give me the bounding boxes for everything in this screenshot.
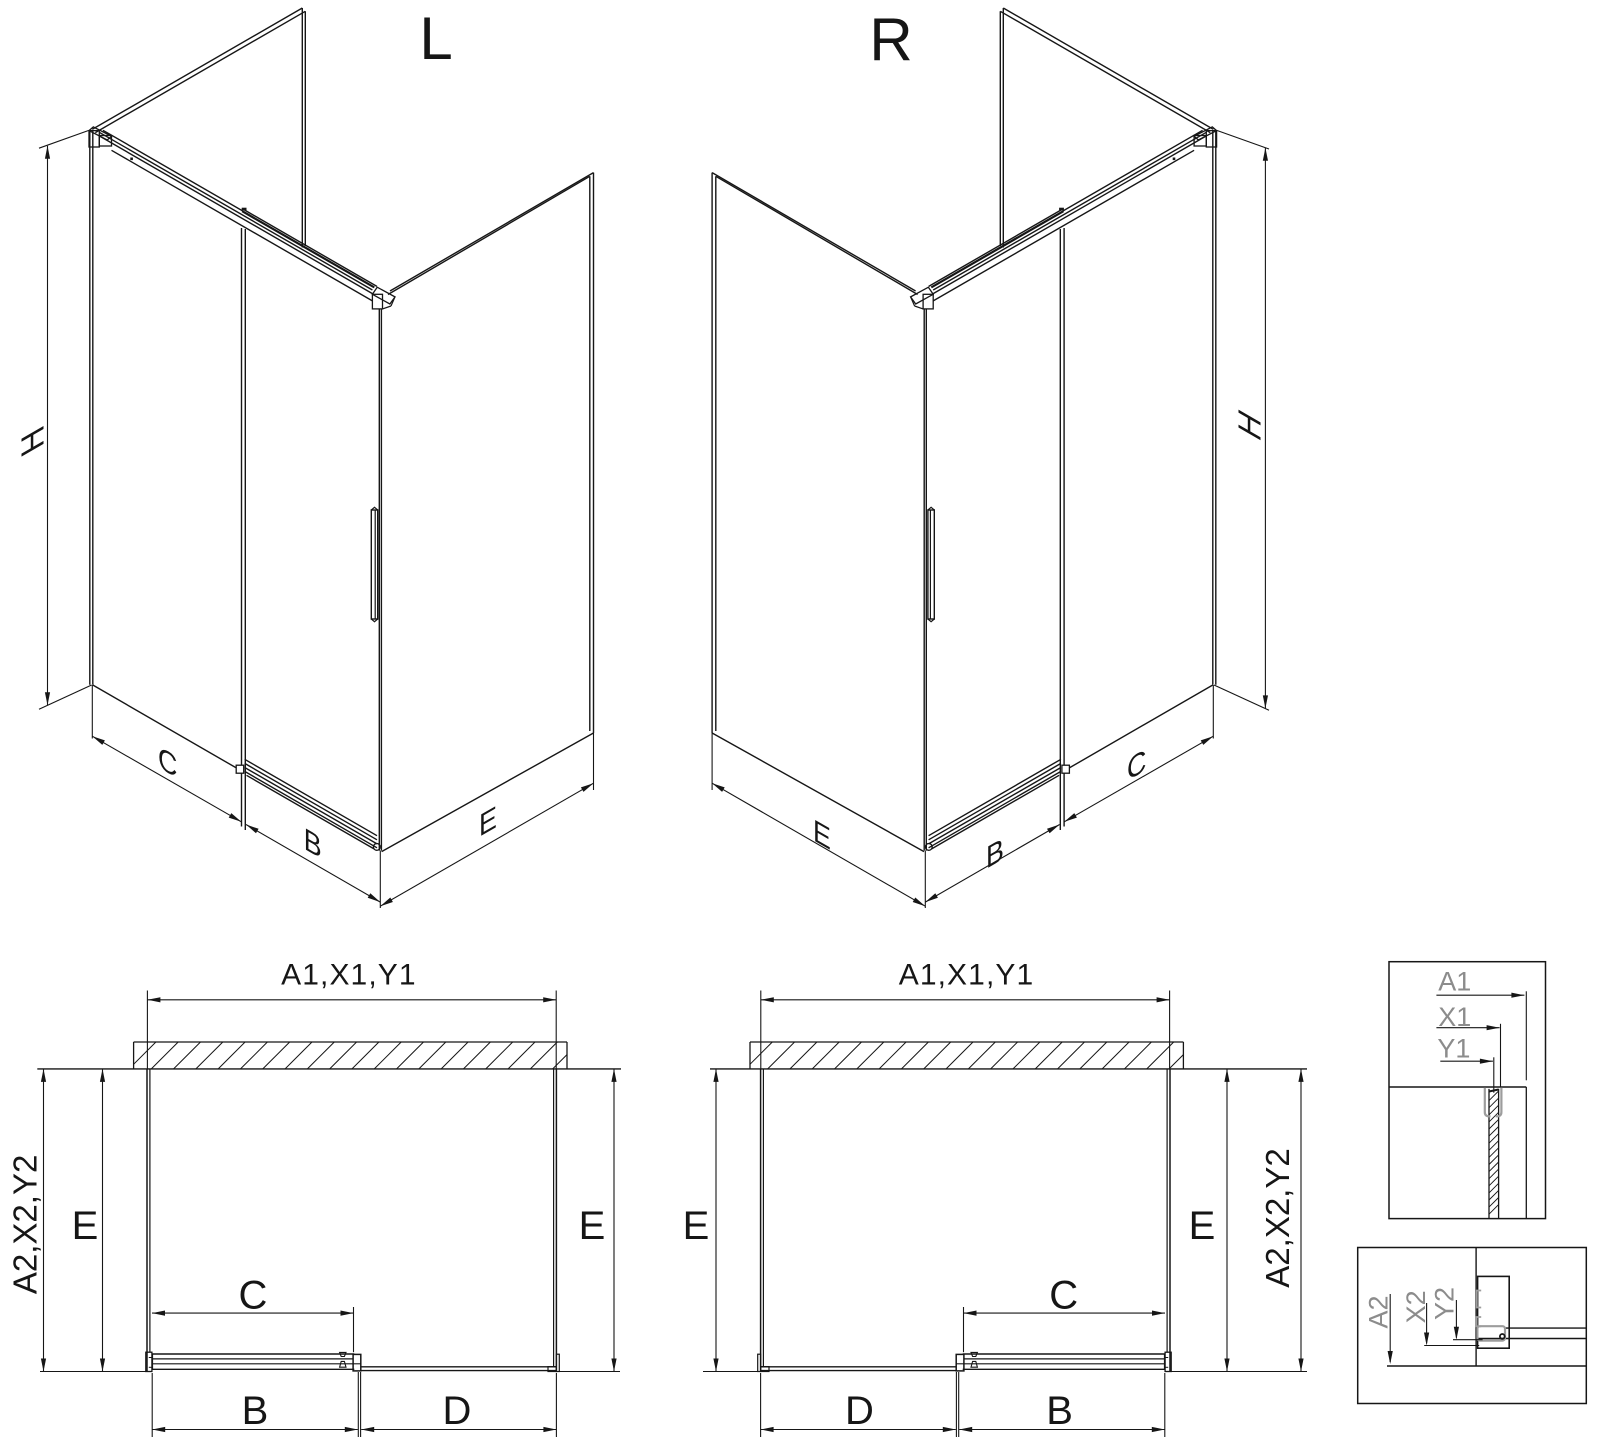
svg-text:Y1: Y1 [1437, 1034, 1470, 1064]
svg-text:D: D [845, 1389, 874, 1433]
svg-text:X1: X1 [1438, 1002, 1471, 1032]
svg-text:B: B [242, 1389, 269, 1433]
svg-text:E: E [72, 1204, 99, 1248]
svg-text:A2,X2,Y2: A2,X2,Y2 [1259, 1148, 1296, 1287]
svg-text:A1: A1 [1438, 966, 1471, 996]
svg-text:E: E [683, 1204, 710, 1248]
svg-text:Y2: Y2 [1430, 1287, 1460, 1320]
svg-text:A1,X1,Y1: A1,X1,Y1 [281, 958, 417, 991]
svg-text:E: E [1189, 1204, 1216, 1248]
svg-text:A2: A2 [1364, 1295, 1394, 1328]
svg-text:A1,X1,Y1: A1,X1,Y1 [899, 958, 1035, 991]
svg-text:B: B [1046, 1389, 1073, 1433]
svg-text:C: C [239, 1274, 268, 1318]
svg-text:R: R [869, 7, 912, 74]
svg-text:L: L [419, 5, 452, 72]
svg-text:X2: X2 [1401, 1290, 1431, 1323]
svg-text:D: D [443, 1389, 472, 1433]
svg-text:C: C [1049, 1274, 1078, 1318]
svg-text:E: E [579, 1204, 606, 1248]
svg-text:A2,X2,Y2: A2,X2,Y2 [7, 1155, 44, 1294]
